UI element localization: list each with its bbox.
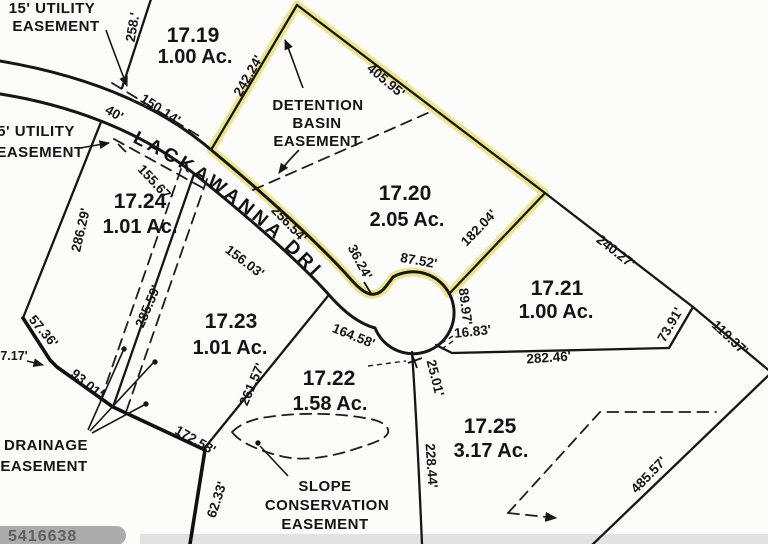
drainage-label-line2: EASEMENT: [0, 458, 87, 475]
plat-map-page: LACKAWANNA DRIVE 17.19 1.00 Ac. 17.20 2.…: [0, 0, 768, 544]
detention-label-line1: DETENTION: [272, 97, 363, 114]
lot-17-21-id: 17.21: [531, 277, 584, 300]
scan-edge-strip: [140, 534, 768, 544]
lot-17-19-id: 17.19: [167, 24, 220, 47]
utility15-label-line2: EASEMENT: [12, 18, 99, 35]
dim-228-44: 228.44': [422, 443, 440, 488]
dim-7-17: 7.17': [0, 349, 27, 363]
plat-map: LACKAWANNA DRIVE 17.19 1.00 Ac. 17.20 2.…: [0, 0, 768, 544]
lot-17-25-id: 17.25: [464, 415, 517, 438]
lot-17-20-area: 2.05 Ac.: [370, 209, 445, 231]
utility5-label-line2: EASEMENT: [0, 144, 84, 161]
watermark-number: 5416638: [8, 528, 77, 544]
drainage-dot-2: [152, 359, 157, 364]
lot-17-22-area: 1.58 Ac.: [293, 393, 368, 415]
slope-label-line3: EASEMENT: [281, 516, 368, 533]
slope-label-line2: CONSERVATION: [265, 497, 389, 514]
slope-dot: [255, 440, 260, 445]
drainage-dot-3: [143, 401, 148, 406]
lot-17-21-area: 1.00 Ac.: [519, 301, 594, 323]
lot-17-23-id: 17.23: [205, 310, 258, 333]
lot-17-25-area: 3.17 Ac.: [454, 440, 529, 462]
utility5-label-line1: 5' UTILITY: [0, 123, 75, 140]
lot-17-20-id: 17.20: [379, 182, 432, 205]
slope-label-line1: SLOPE: [298, 478, 351, 495]
detention-label-line3: EASEMENT: [273, 133, 360, 150]
drainage-dot-1: [121, 346, 126, 351]
dim-282-46: 282.46': [526, 348, 571, 366]
drainage-label-line1: DRAINAGE: [4, 437, 88, 454]
watermark: 5416638: [0, 526, 126, 544]
detention-label-line2: BASIN: [292, 115, 341, 132]
lot-17-19-area: 1.00 Ac.: [158, 46, 233, 68]
lot-17-22-id: 17.22: [303, 367, 356, 390]
lot-17-23-area: 1.01 Ac.: [193, 337, 268, 359]
utility15-label-line1: 15' UTILITY: [9, 0, 96, 17]
lot-17-24-area: 1.01 Ac.: [103, 216, 178, 238]
